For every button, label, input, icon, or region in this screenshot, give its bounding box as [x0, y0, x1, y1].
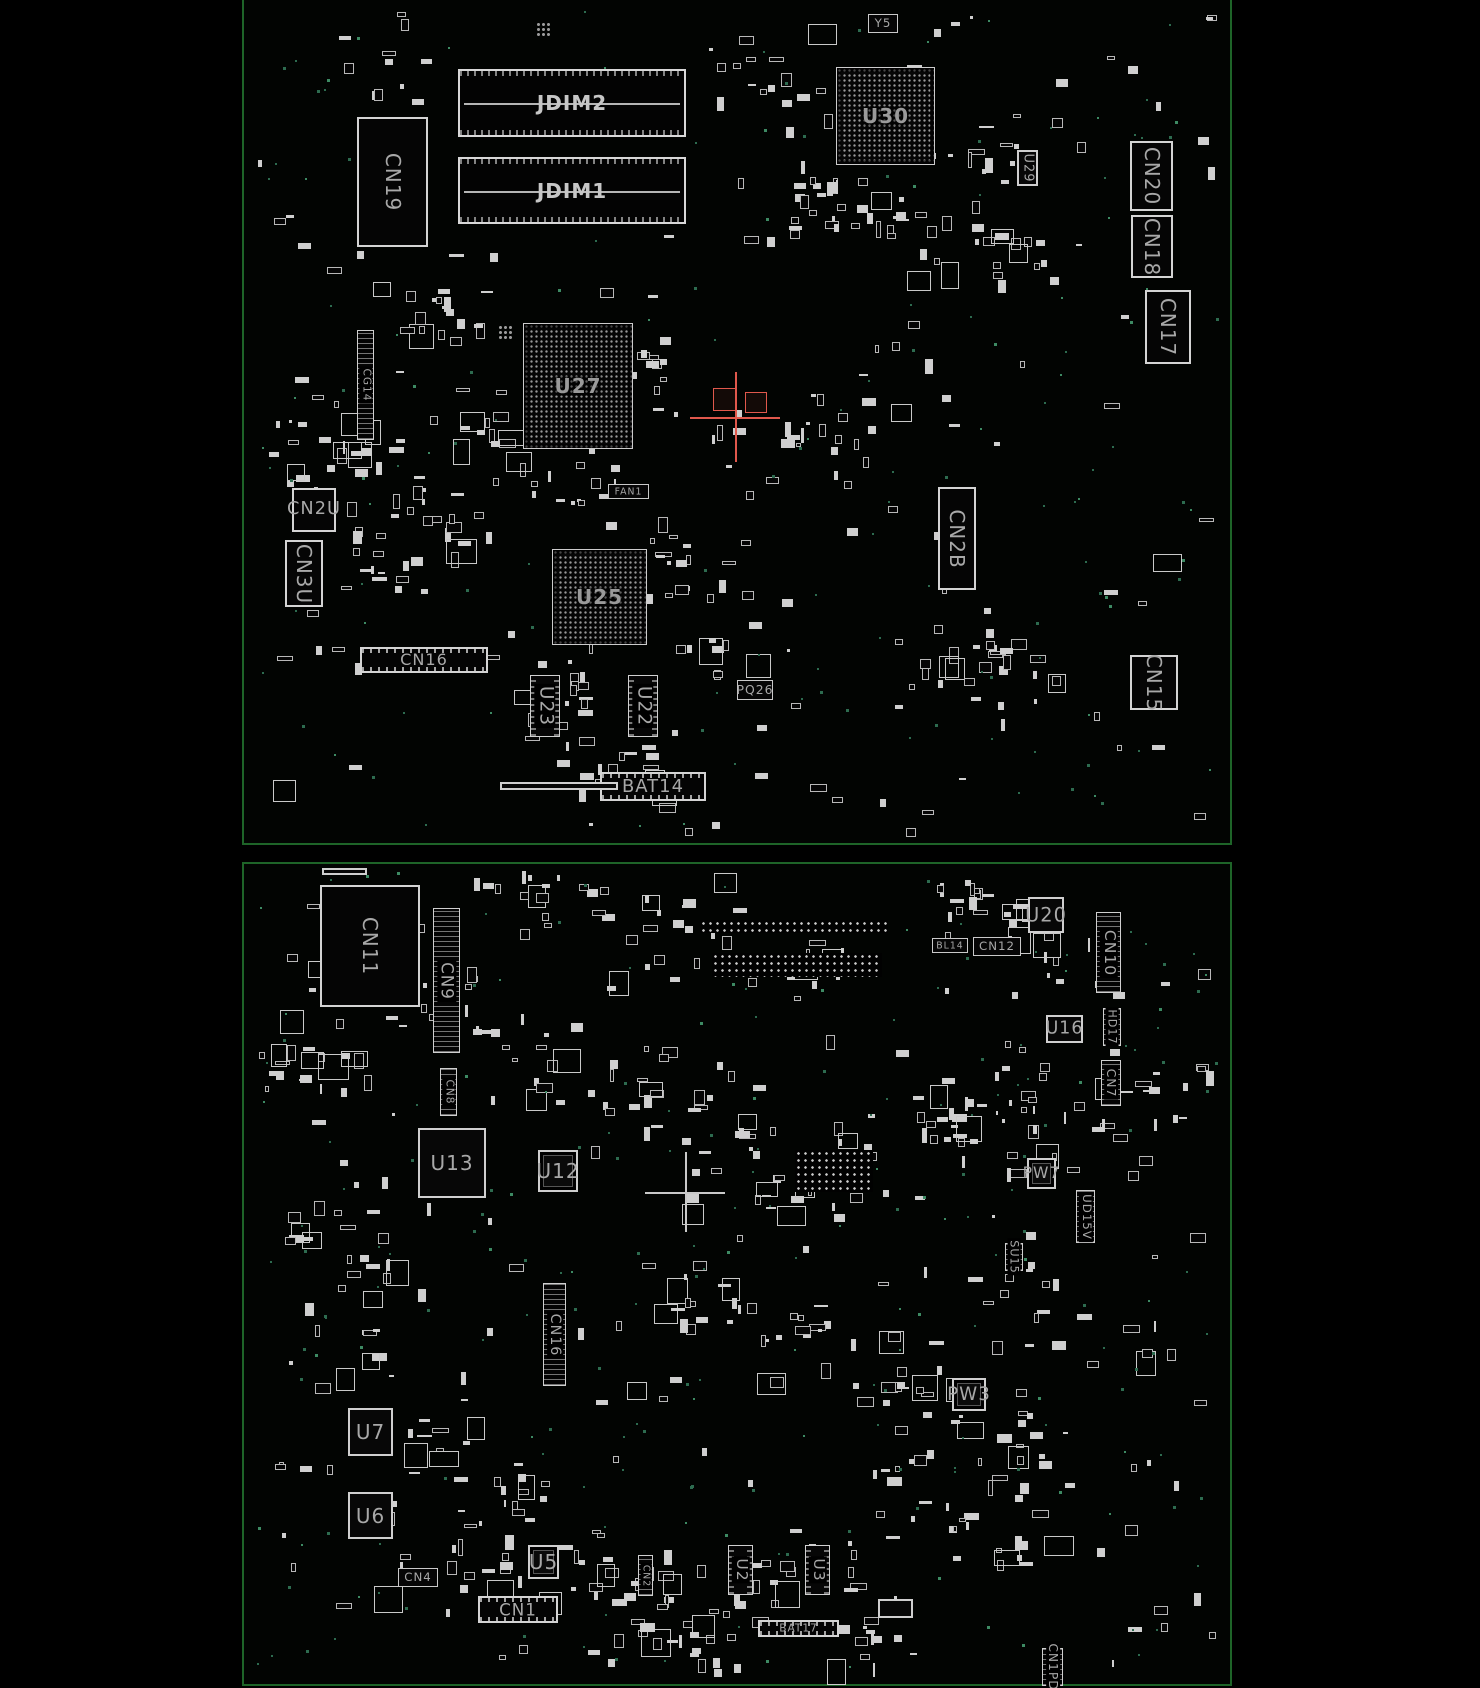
smd-pad — [467, 967, 477, 983]
smd-pad — [671, 1308, 685, 1311]
component-PW3[interactable]: PW3 — [952, 1378, 986, 1411]
smd-pad — [855, 1637, 868, 1646]
smd-pad — [670, 977, 680, 982]
smd-pad — [449, 254, 464, 258]
via-dot — [945, 476, 948, 479]
via-dot — [1092, 469, 1094, 471]
via-dot — [695, 1275, 698, 1278]
via-dot — [858, 29, 861, 32]
via-dot — [937, 987, 939, 989]
smd-pad — [1198, 137, 1209, 145]
smd-pad — [735, 1131, 750, 1138]
smd-pad — [660, 359, 668, 365]
smd-pad — [1012, 992, 1018, 999]
via-dot — [495, 419, 497, 421]
smd-pad — [1199, 518, 1213, 522]
smd-pad — [746, 491, 753, 500]
smd-pad — [481, 291, 494, 293]
component-CN2B[interactable]: CN2B — [938, 487, 976, 590]
via-dot — [635, 1303, 637, 1305]
smd-pad — [467, 1417, 485, 1440]
component-U7[interactable]: U7 — [348, 1408, 393, 1456]
smd-pad — [362, 1353, 380, 1370]
smd-pad — [993, 272, 1003, 279]
component-BL14[interactable]: BL14 — [932, 938, 968, 953]
component-U5[interactable]: U5 — [528, 1545, 559, 1579]
smd-pad — [303, 1047, 316, 1051]
smd-pad — [451, 493, 465, 496]
smd-pad — [449, 514, 456, 524]
smd-pad — [397, 12, 406, 18]
via-dot — [979, 194, 981, 196]
smd-pad — [713, 1658, 720, 1668]
smd-pad — [906, 828, 916, 837]
smd-pad — [1097, 1548, 1105, 1557]
smd-pad — [374, 1586, 404, 1613]
component-CN1PD[interactable]: CN1PD — [1042, 1648, 1063, 1686]
via-dot — [886, 175, 889, 178]
smd-pad — [413, 486, 422, 500]
via-dot — [879, 637, 881, 639]
smd-pad — [548, 471, 550, 482]
component-PW7[interactable]: PW7 — [1027, 1158, 1056, 1189]
component-U30[interactable]: U30 — [836, 67, 935, 165]
via-dot — [637, 1252, 640, 1255]
component-CN20[interactable]: CN20 — [1130, 141, 1173, 211]
via-dot — [909, 737, 911, 739]
smd-pad — [896, 219, 909, 222]
smd-pad — [831, 447, 838, 455]
component-CN11[interactable]: CN11 — [320, 885, 420, 1007]
smd-pad — [801, 161, 805, 174]
via-dot — [260, 907, 262, 909]
component-CN8[interactable]: CN8 — [440, 1068, 457, 1116]
box — [322, 868, 367, 875]
smd-pad — [941, 262, 959, 289]
smd-pad — [717, 1062, 722, 1070]
smd-pad — [937, 1366, 942, 1375]
smd-pad — [864, 1617, 879, 1624]
smd-pad — [446, 539, 477, 564]
smd-pad — [518, 1474, 526, 1482]
via-dot — [306, 1650, 309, 1653]
smd-pad — [742, 591, 754, 599]
smd-pad — [1052, 118, 1063, 128]
smd-pad — [382, 51, 396, 57]
component-label-PQ26: PQ26 — [737, 684, 774, 696]
smd-pad — [672, 730, 678, 736]
smd-pad — [956, 907, 962, 915]
smd-pad — [1007, 1152, 1018, 1159]
smd-pad — [353, 548, 361, 555]
smd-pad — [395, 586, 401, 593]
smd-pad — [719, 580, 726, 593]
smd-pad — [1183, 1083, 1188, 1090]
via-dot — [1059, 1491, 1062, 1494]
component-CN17[interactable]: CN17 — [1145, 290, 1191, 364]
via-dot — [1099, 592, 1102, 595]
smd-pad — [851, 223, 861, 229]
smd-pad — [850, 1193, 863, 1202]
smd-pad — [286, 215, 294, 219]
smd-pad — [436, 297, 442, 304]
via-dot — [893, 1019, 895, 1021]
smd-pad — [544, 1033, 549, 1037]
smd-pad — [876, 1511, 885, 1518]
component-FAN1[interactable]: FAN1 — [608, 484, 649, 499]
via-dot — [1017, 1084, 1019, 1086]
box — [500, 782, 618, 790]
component-CN16[interactable]: CN16 — [360, 647, 488, 673]
component-CN2[interactable]: CN2 — [638, 1555, 653, 1596]
smd-pad — [382, 1177, 389, 1190]
component-CN9[interactable]: CN9 — [433, 908, 460, 1053]
smd-pad — [748, 1480, 753, 1487]
smd-pad — [722, 1278, 740, 1301]
smd-pad — [858, 178, 868, 186]
via-dot — [763, 51, 765, 53]
smd-pad — [790, 1313, 797, 1320]
smd-pad — [875, 345, 879, 353]
smd-pad — [520, 929, 531, 940]
smd-pad — [1063, 1432, 1068, 1435]
component-U3[interactable]: U3 — [805, 1545, 830, 1595]
smd-pad — [401, 19, 409, 31]
component-Y5[interactable]: Y5 — [868, 14, 898, 33]
via-dot — [1197, 990, 1200, 993]
component-PQ26[interactable]: PQ26 — [737, 680, 773, 700]
smd-pad — [499, 1655, 506, 1660]
smd-pad — [1112, 1660, 1114, 1667]
smd-pad — [794, 996, 802, 1002]
smd-pad — [851, 1550, 857, 1560]
component-U20[interactable]: U20 — [1028, 897, 1064, 933]
via-dot — [490, 1189, 493, 1192]
component-CN12[interactable]: CN12 — [973, 937, 1021, 956]
via-dot — [1134, 1049, 1136, 1051]
smd-pad — [438, 330, 445, 340]
smd-pad — [587, 889, 598, 897]
smd-pad — [1153, 1072, 1160, 1075]
smd-pad — [645, 964, 651, 970]
via-dot — [873, 1384, 875, 1386]
via-dot — [360, 1346, 363, 1349]
via-dot — [481, 1213, 484, 1216]
component-UD15V[interactable]: UD15V — [1076, 1190, 1095, 1243]
smd-pad — [832, 189, 836, 193]
smd-pad — [1034, 263, 1040, 270]
smd-pad — [1047, 973, 1051, 978]
via-dot — [427, 1309, 430, 1312]
via-dot — [991, 738, 993, 740]
smd-pad — [493, 478, 500, 486]
smd-pad — [892, 342, 900, 351]
smd-pad — [610, 1060, 618, 1068]
smd-pad — [571, 1587, 576, 1590]
smd-pad — [930, 1135, 938, 1144]
component-HD17[interactable]: HD17 — [1103, 1008, 1121, 1046]
smd-pad — [643, 765, 659, 770]
smd-pad — [491, 441, 499, 447]
smd-pad — [366, 1264, 380, 1269]
smd-pad — [862, 398, 876, 406]
component-U23[interactable]: U23 — [530, 675, 560, 737]
smd-pad — [364, 1075, 371, 1091]
smd-pad — [509, 1264, 524, 1271]
smd-pad — [1040, 1063, 1050, 1072]
component-U2[interactable]: U2 — [728, 1545, 753, 1595]
via-dot — [970, 316, 972, 318]
smd-pad — [867, 213, 873, 224]
via-dot — [1206, 1333, 1208, 1335]
smd-pad — [1138, 601, 1147, 607]
smd-pad — [487, 1580, 514, 1597]
smd-pad — [767, 237, 775, 246]
smd-pad — [1020, 1483, 1029, 1494]
via-dot — [583, 1646, 585, 1648]
smd-pad — [811, 394, 816, 397]
component-label-CN1: CN1 — [499, 1601, 537, 1618]
component-U6[interactable]: U6 — [348, 1492, 393, 1539]
via-dot — [807, 438, 809, 440]
smd-pad — [404, 1443, 428, 1467]
component-label-U25: U25 — [576, 587, 623, 607]
smd-pad — [977, 1104, 987, 1107]
smd-pad — [1128, 1627, 1141, 1632]
via-dot — [329, 1141, 331, 1143]
smd-pad — [287, 1045, 296, 1061]
via-dot — [766, 218, 769, 221]
via-dot — [753, 1097, 756, 1100]
component-U25[interactable]: U25 — [552, 549, 647, 645]
component-SU15[interactable]: SU15 — [1005, 1243, 1023, 1271]
smd-pad — [998, 280, 1006, 293]
smd-pad — [896, 1050, 908, 1057]
smd-pad — [709, 48, 714, 51]
smd-pad — [1102, 1119, 1105, 1132]
smd-pad — [651, 1125, 663, 1128]
smd-pad — [460, 426, 470, 429]
component-JDIM1[interactable]: JDIM1 — [458, 157, 686, 224]
smd-pad — [458, 1510, 464, 1512]
smd-pad — [613, 1456, 620, 1463]
smd-pad — [336, 1368, 355, 1391]
via-dot — [1101, 802, 1104, 805]
component-label-CN10: CN10 — [1100, 927, 1118, 977]
smd-pad — [968, 152, 972, 168]
smd-pad — [1034, 699, 1038, 704]
component-CN1[interactable]: CN1 — [478, 1596, 558, 1623]
via-dot — [608, 1132, 610, 1134]
smd-pad — [922, 810, 935, 816]
component-BAT17[interactable]: BAT17 — [758, 1620, 839, 1637]
smd-pad — [396, 439, 406, 444]
via-dot — [425, 824, 427, 826]
smd-pad — [679, 1635, 682, 1648]
via-dot — [799, 447, 802, 450]
smd-pad — [790, 1529, 802, 1533]
via-dot — [499, 979, 501, 981]
component-JDIM2[interactable]: JDIM2 — [458, 69, 686, 137]
smd-pad — [579, 788, 586, 802]
via-dot — [301, 1225, 303, 1227]
via-dot — [693, 1245, 695, 1247]
smd-pad — [1209, 1632, 1216, 1639]
smd-pad — [316, 646, 321, 654]
smd-pad — [491, 1029, 500, 1036]
smd-pad — [973, 645, 980, 649]
smd-pad — [427, 1203, 431, 1216]
smd-pad — [408, 1429, 413, 1438]
smd-pad — [591, 1146, 601, 1158]
smd-pad — [994, 442, 1000, 446]
via-dot — [695, 142, 697, 144]
smd-pad — [694, 958, 700, 969]
smd-pad — [1032, 1510, 1049, 1518]
smd-pad — [946, 1503, 949, 1511]
component-CN19[interactable]: CN19 — [357, 117, 428, 247]
smd-pad — [452, 1545, 456, 1553]
smd-pad — [608, 1659, 615, 1668]
smd-pad — [789, 226, 802, 230]
via-dot — [643, 1430, 646, 1433]
via-dot — [285, 1013, 287, 1015]
via-dot — [1038, 1397, 1041, 1400]
via-dot — [778, 1553, 780, 1555]
smd-pad — [1065, 1483, 1076, 1488]
smd-pad — [684, 1274, 687, 1280]
smd-pad — [1104, 590, 1119, 595]
smd-pad — [967, 1099, 974, 1107]
component-CN2U[interactable]: CN2U — [292, 488, 336, 532]
smd-pad — [544, 923, 552, 929]
via-dot — [1112, 446, 1114, 448]
highlight-box — [713, 388, 737, 411]
smd-pad — [307, 610, 319, 617]
smd-pad — [709, 638, 716, 643]
component-U16[interactable]: U16 — [1046, 1015, 1083, 1043]
component-CN3U[interactable]: CN3U — [285, 540, 323, 607]
smd-pad — [454, 1477, 468, 1482]
via-dot — [304, 1250, 307, 1253]
smd-pad — [714, 1669, 722, 1678]
smd-pad — [698, 1659, 705, 1673]
via-dot — [629, 967, 631, 969]
smd-pad — [477, 430, 485, 435]
smd-pad — [465, 984, 472, 990]
smd-pad — [694, 1090, 704, 1105]
component-CN18[interactable]: CN18 — [1131, 215, 1173, 278]
via-dot — [1011, 1189, 1013, 1191]
smd-pad — [1053, 1279, 1059, 1290]
smd-pad — [340, 1160, 349, 1166]
smd-pad — [486, 655, 500, 660]
box — [878, 1599, 913, 1618]
via-dot — [315, 1354, 318, 1357]
smd-pad — [1128, 66, 1138, 74]
component-U27[interactable]: U27 — [523, 323, 633, 449]
component-CG14[interactable]: CG14 — [357, 330, 374, 440]
smd-pad — [838, 413, 848, 422]
via-dot — [745, 988, 747, 990]
smd-pad — [847, 528, 858, 536]
smd-pad — [1041, 260, 1047, 268]
component-U22[interactable]: U22 — [628, 675, 658, 737]
component-CN15[interactable]: CN15 — [1130, 655, 1178, 710]
component-label-CN11: CN11 — [360, 917, 380, 975]
component-label-CN2B: CN2B — [947, 509, 967, 568]
component-CN7[interactable]: CN7 — [1101, 1060, 1121, 1106]
smd-pad — [992, 1341, 1003, 1355]
smd-pad — [486, 532, 492, 544]
component-label-CN12: CN12 — [979, 941, 1015, 953]
smd-pad — [386, 1016, 398, 1021]
smd-pad — [1017, 1456, 1024, 1465]
component-U12[interactable]: U12 — [538, 1150, 578, 1192]
component-label-U2: U2 — [732, 1556, 750, 1583]
smd-pad — [556, 499, 565, 502]
via-dot — [913, 185, 916, 188]
component-CN4[interactable]: CN4 — [398, 1568, 438, 1587]
smd-pad — [982, 894, 994, 897]
smd-pad — [274, 218, 285, 226]
via-dot — [1125, 1045, 1127, 1047]
via-dot — [330, 305, 332, 307]
smd-pad — [1179, 1117, 1187, 1119]
smd-pad — [414, 476, 426, 479]
via-dot — [912, 349, 915, 352]
smd-pad — [876, 221, 882, 237]
smd-pad — [360, 1255, 369, 1262]
smd-pad — [834, 1214, 845, 1222]
smd-pad — [271, 1044, 287, 1068]
smd-pad — [568, 660, 572, 665]
smd-pad — [735, 1601, 746, 1610]
via-dot — [927, 41, 929, 43]
via-dot — [1035, 951, 1037, 953]
smd-pad — [644, 1127, 650, 1141]
smd-pad — [970, 1139, 978, 1144]
smd-pad — [421, 59, 432, 64]
smd-pad — [361, 448, 372, 456]
smd-pad — [832, 797, 843, 802]
via-dot — [1023, 1155, 1026, 1158]
via-dot — [366, 875, 369, 878]
smd-pad — [1119, 1091, 1133, 1093]
smd-pad — [363, 1291, 384, 1308]
component-CN16[interactable]: CN16 — [543, 1283, 566, 1386]
component-U29[interactable]: U29 — [1017, 150, 1038, 186]
via-dot — [1193, 953, 1195, 955]
smd-pad — [1000, 143, 1014, 147]
smd-pad — [393, 494, 401, 510]
smd-pad — [333, 442, 362, 460]
via-dot — [1138, 750, 1140, 752]
smd-pad — [927, 226, 937, 237]
smd-pad — [487, 1328, 494, 1337]
smd-pad — [1117, 745, 1122, 751]
component-U13[interactable]: U13 — [418, 1128, 486, 1198]
smd-pad — [728, 1071, 735, 1082]
smd-pad — [680, 1319, 688, 1333]
smd-pad — [687, 645, 692, 653]
smd-pad — [917, 1112, 925, 1123]
via-dot — [317, 90, 320, 93]
component-label-U22: U22 — [633, 684, 654, 728]
via-dot — [598, 1367, 601, 1370]
component-CN10[interactable]: CN10 — [1096, 912, 1121, 993]
smd-pad — [291, 1563, 296, 1572]
